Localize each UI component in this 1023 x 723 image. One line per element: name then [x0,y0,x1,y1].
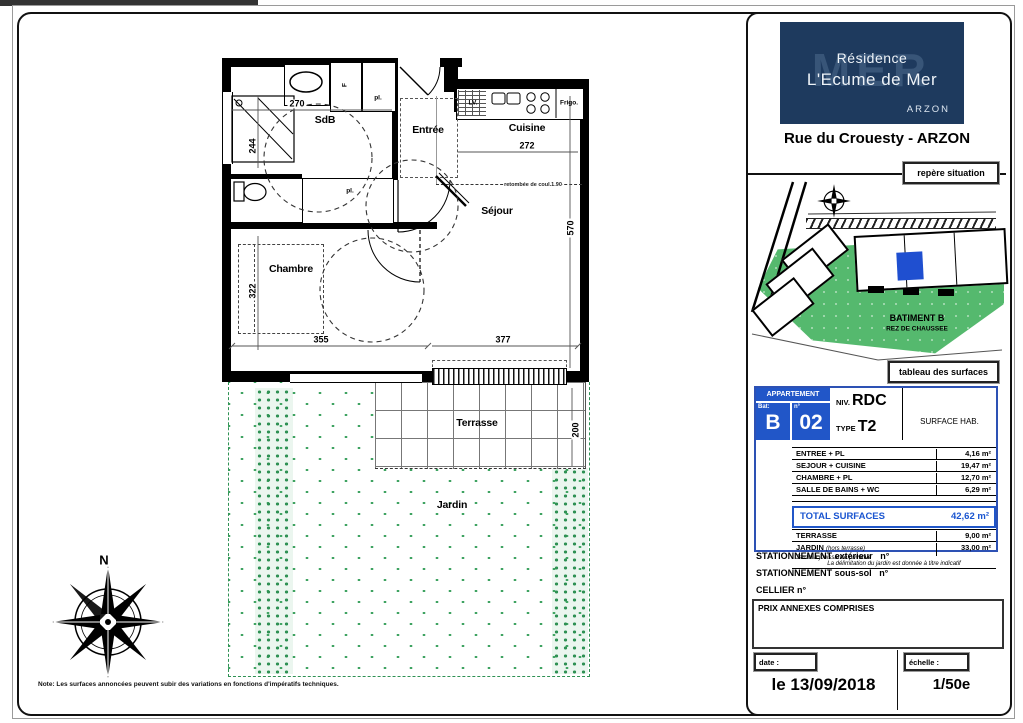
plan-sheet: SdB Entrée Cuisine Séjour Chambre Terras… [0,0,1023,723]
logo-line2: L'Ecume de Mer [780,70,964,90]
site-batiment-label: BATIMENT B [890,313,945,323]
label-lave-vaisselle: LV. [468,100,477,107]
parking-ss-label: STATIONNEMENT sous-sol n° [756,568,888,578]
num-cell: n° 02 [792,403,830,440]
type-value: T2 [858,418,877,435]
dim-sejour-width: 377 [493,336,512,345]
niv-value: RDC [852,392,887,409]
dim-chambre-width: 355 [311,336,330,345]
address-line: Rue du Crouesty - ARZON [748,130,1006,147]
room-label-terrasse: Terrasse [456,417,497,429]
closet-pl-top [362,62,396,112]
closet-pl-mid [302,178,394,224]
room-label-jardin: Jardin [437,499,467,511]
label-placard-top: pl. [374,95,382,102]
entree-dashed-zone [400,98,458,178]
cellier-label: CELLIER n° [756,585,806,595]
room-label-cuisine: Cuisine [509,122,546,134]
bat-value: B [756,411,790,435]
apartment-banner: APPARTEMENT [756,388,830,401]
prix-annexes-box: PRIX ANNEXES COMPRISES [752,599,1004,649]
hedge-right [552,468,588,674]
closet-f [330,62,362,112]
repere-situation-label: repère situation [917,168,985,178]
date-box: date : [754,653,817,671]
window-chambre [290,373,422,383]
logo-city: ARZON [907,104,950,115]
residence-logo: MER Résidence L'Ecume de Mer ARZON [780,22,964,124]
dim-sejour-height: 570 [567,218,576,237]
num-value: 02 [792,411,830,435]
bay-window-sejour [432,368,567,385]
surface-rows: ENTREE + PL 4,16 m² SEJOUR + CUISINE 19,… [792,442,996,569]
wall-right [580,79,589,382]
partition-wc [222,174,302,179]
site-building-b [854,228,1009,292]
scale-value: 1/50e [899,676,1004,693]
repere-situation-box: repère situation [903,162,999,184]
niv-type-cell: NIV. RDC TYPE T2 [834,388,900,440]
room-label-sdb: SdB [315,114,335,126]
site-niveau-label: REZ DE CHAUSSEE [886,326,948,333]
line-entree-sejour [436,96,437,184]
bay-dashed [432,360,567,367]
table-row: SALLE DE BAINS + WC 6,29 m² [792,483,996,496]
date-scale-divider [897,650,898,710]
surface-disclaimer-note: Note: Les surfaces annoncées peuvent sub… [38,681,339,688]
window-sdb [222,92,233,164]
bat-cell: Bat: B [756,403,790,440]
north-label: N [99,553,108,568]
room-label-sejour: Séjour [481,205,512,217]
label-washer: F [342,83,349,87]
tableau-surfaces-box: tableau des surfaces [888,361,999,383]
prix-annexes-label: PRIX ANNEXES COMPRISES [758,603,874,613]
scale-box: échelle : [904,653,969,671]
label-frigo: Frigo. [560,100,578,107]
label-placard-mid: pl. [346,188,354,195]
site-highlighted-unit [896,251,923,280]
wall-top-right [455,79,588,88]
dim-sdb-width: 270 [287,100,306,109]
dim-chambre-height: 322 [249,281,258,300]
total-surfaces-row: TOTAL SURFACES 42,62 m² [792,506,996,528]
dim-sdb-height: 244 [249,136,258,155]
room-label-entree: Entrée [412,124,443,136]
logo-line1: Résidence [780,50,964,66]
parking-ext-label: STATIONNEMENT extérieur n° [756,551,889,561]
surfaces-table: APPARTEMENT Bat: B n° 02 NIV. RDC TYPE T… [754,386,998,552]
dim-terrasse-height: 200 [572,420,581,439]
room-label-chambre: Chambre [269,263,313,275]
dim-cuisine-width: 272 [517,142,536,151]
date-value: le 13/09/2018 [752,675,895,695]
hedge-left [255,388,293,674]
surface-hab-header: SURFACE HAB. [902,388,996,440]
site-road-hatched [806,218,996,229]
tableau-surfaces-label: tableau des surfaces [899,367,988,377]
soffit-annotation: retombée de coul.1.90 [504,182,562,188]
